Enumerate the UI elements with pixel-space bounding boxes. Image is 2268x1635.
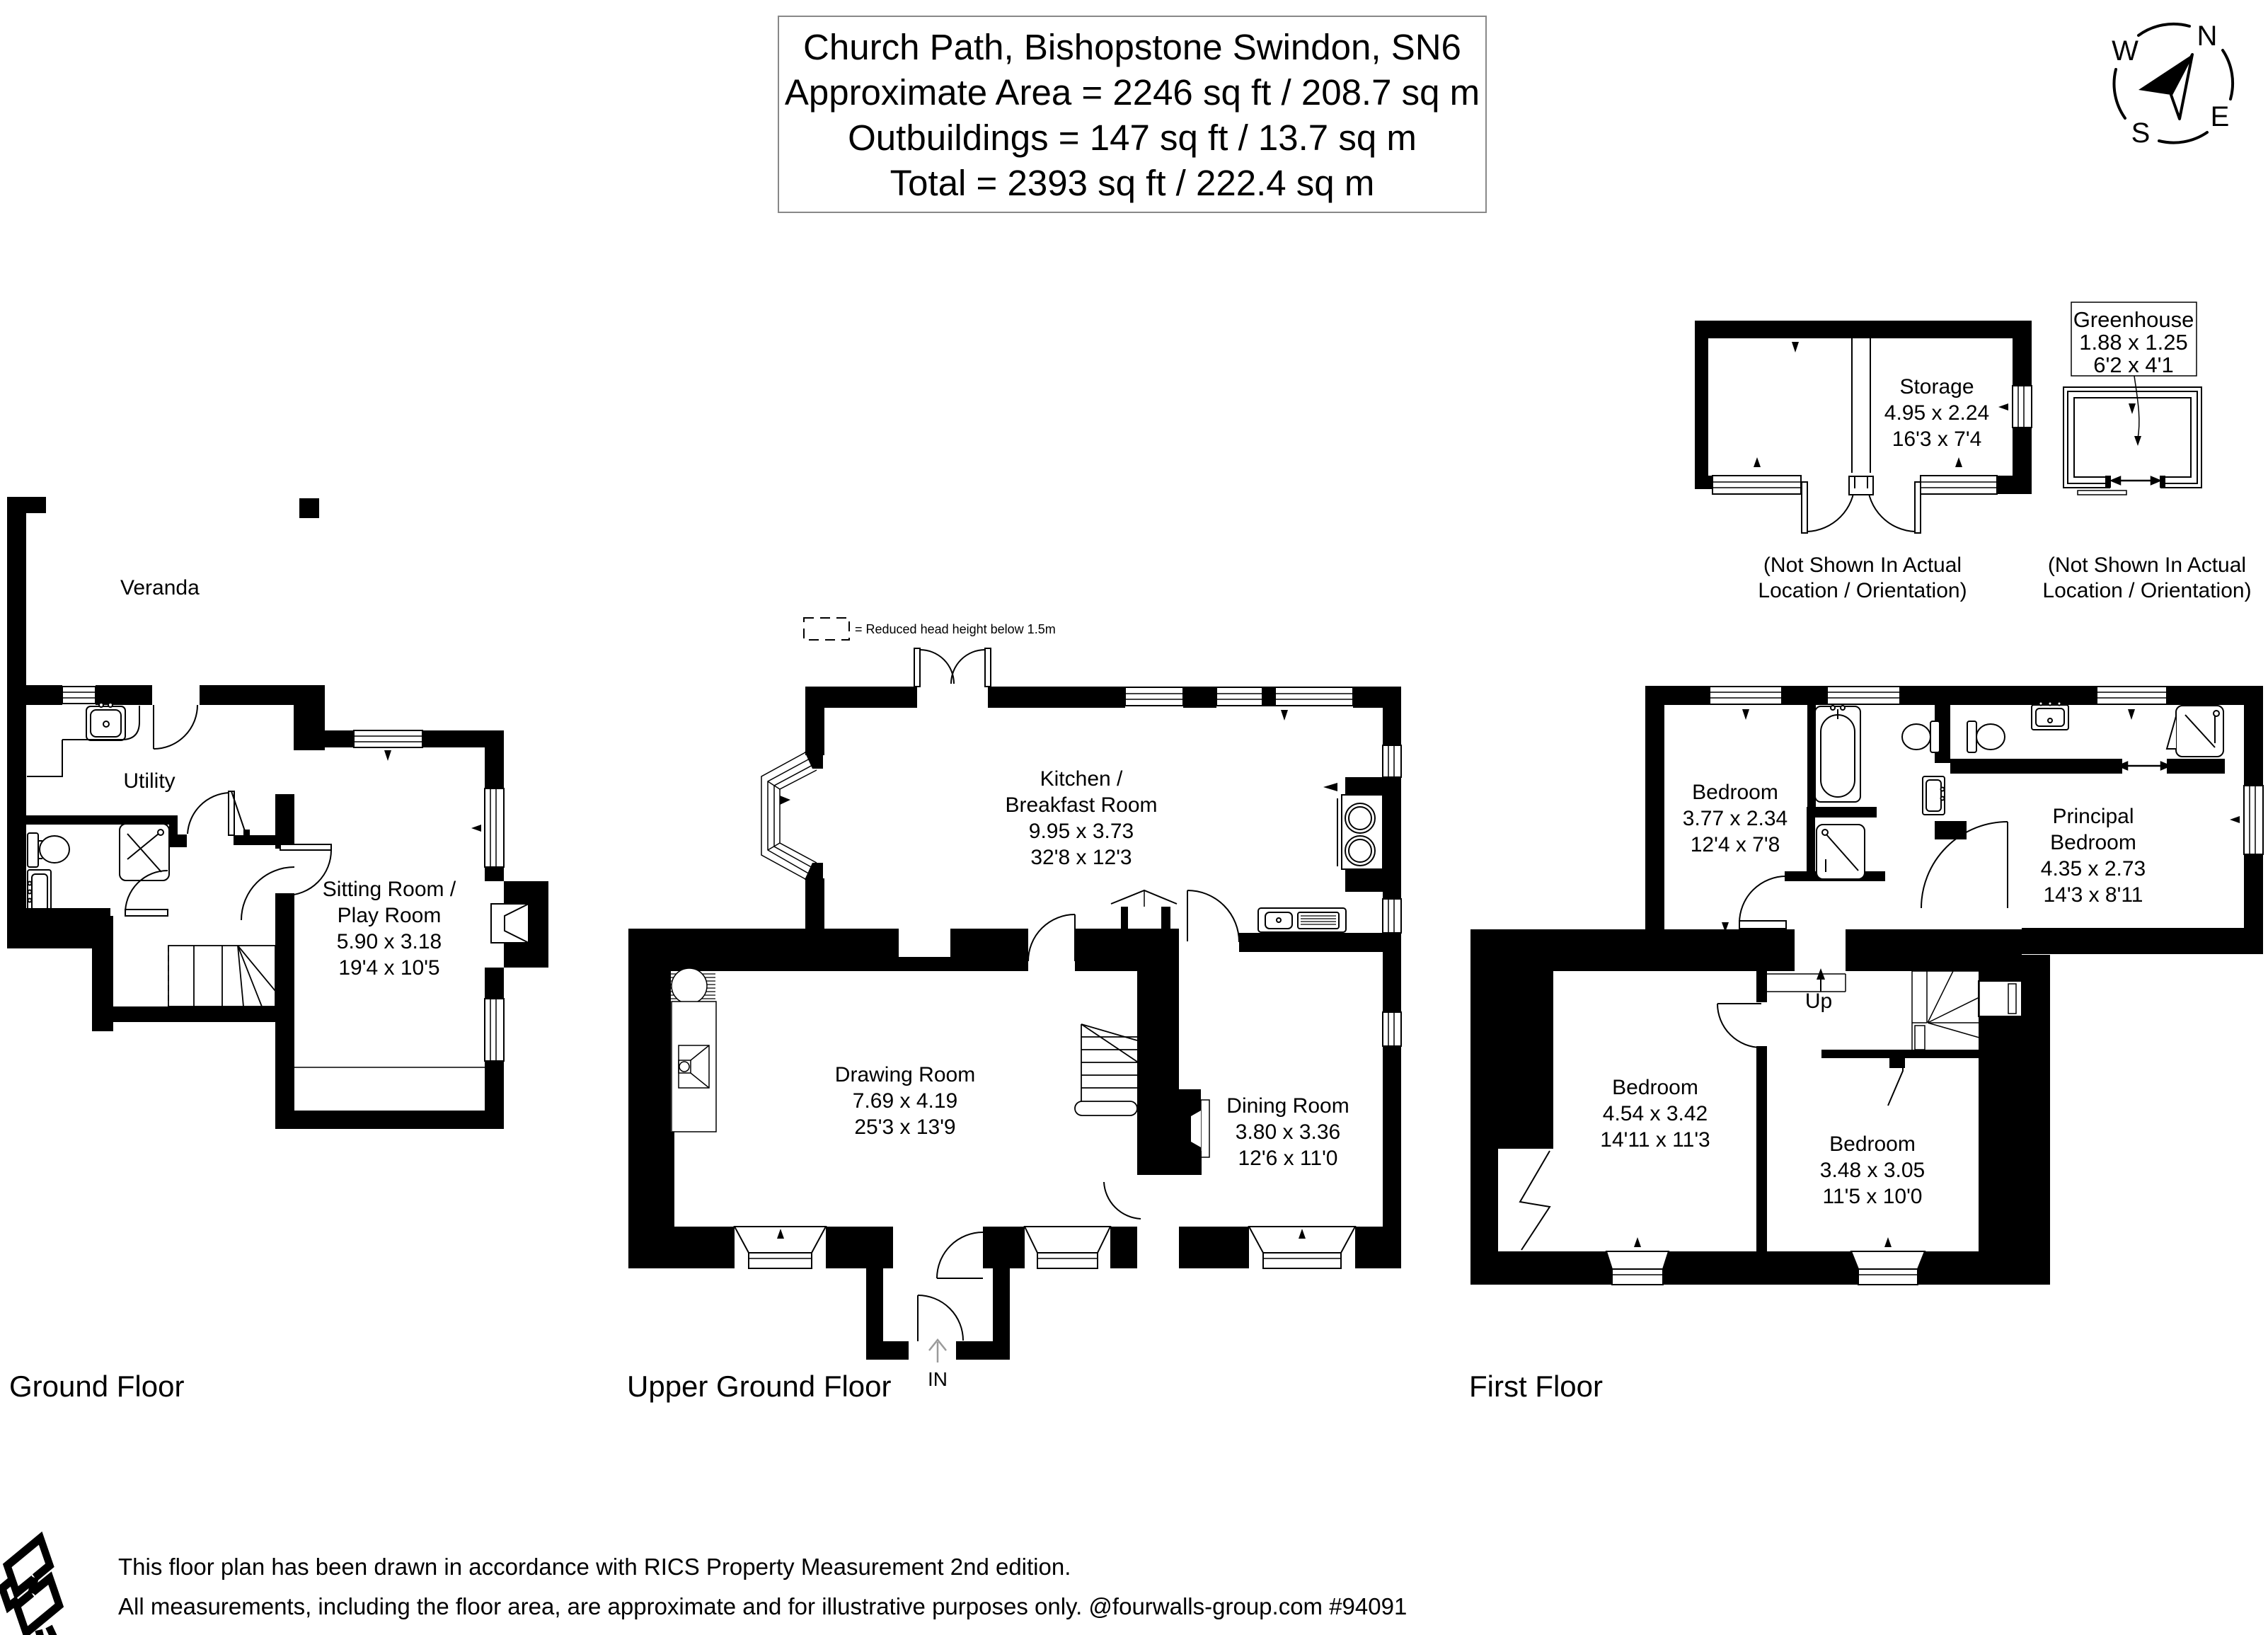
svg-text:= Reduced head height below 1.: = Reduced head height below 1.5m xyxy=(855,622,1056,636)
svg-text:This floor plan has been drawn: This floor plan has been drawn in accord… xyxy=(118,1554,1071,1580)
svg-text:Drawing Room: Drawing Room xyxy=(835,1063,975,1086)
svg-text:Bedroom: Bedroom xyxy=(2050,831,2136,854)
svg-text:First Floor: First Floor xyxy=(1469,1370,1603,1403)
svg-text:9.95 x 3.73: 9.95 x 3.73 xyxy=(1029,820,1134,843)
svg-text:Sitting Room /: Sitting Room / xyxy=(323,878,456,901)
svg-text:Up: Up xyxy=(1805,989,1832,1013)
svg-text:Principal: Principal xyxy=(2052,805,2134,828)
svg-text:S: S xyxy=(2131,117,2151,149)
svg-text:Utility: Utility xyxy=(123,769,175,793)
svg-text:Greenhouse: Greenhouse xyxy=(2073,307,2194,332)
svg-text:1.88 x 1.25: 1.88 x 1.25 xyxy=(2079,330,2187,355)
svg-text:(Not Shown In Actual: (Not Shown In Actual xyxy=(1763,553,1962,577)
svg-text:E: E xyxy=(2211,101,2230,132)
svg-text:Total = 2393 sq ft / 222.4 sq: Total = 2393 sq ft / 222.4 sq m xyxy=(890,163,1375,203)
svg-text:19'4 x 10'5: 19'4 x 10'5 xyxy=(338,956,439,980)
svg-text:5.90 x 3.18: 5.90 x 3.18 xyxy=(337,930,442,953)
svg-text:Veranda: Veranda xyxy=(120,576,200,599)
svg-text:25'3 x 13'9: 25'3 x 13'9 xyxy=(854,1115,955,1139)
svg-text:Approximate Area = 2246 sq ft: Approximate Area = 2246 sq ft / 208.7 sq… xyxy=(785,72,1480,113)
svg-text:Dining Room: Dining Room xyxy=(1226,1094,1349,1118)
svg-text:Kitchen /: Kitchen / xyxy=(1040,767,1123,791)
svg-text:7.69 x 4.19: 7.69 x 4.19 xyxy=(853,1089,957,1113)
svg-text:3.77 x 2.34: 3.77 x 2.34 xyxy=(1683,807,1788,830)
svg-text:IN: IN xyxy=(928,1368,948,1390)
svg-text:11'5 x 10'0: 11'5 x 10'0 xyxy=(1822,1185,1922,1208)
svg-text:4.35 x 2.73: 4.35 x 2.73 xyxy=(2041,857,2146,880)
svg-text:4.54 x 3.42: 4.54 x 3.42 xyxy=(1603,1102,1708,1125)
svg-text:3.48 x 3.05: 3.48 x 3.05 xyxy=(1820,1159,1925,1182)
svg-text:W: W xyxy=(2112,35,2139,67)
svg-text:(Not Shown In Actual: (Not Shown In Actual xyxy=(2048,553,2246,577)
svg-text:Bedroom: Bedroom xyxy=(1612,1076,1698,1099)
svg-text:Ground Floor: Ground Floor xyxy=(9,1370,184,1403)
svg-text:32'8 x 12'3: 32'8 x 12'3 xyxy=(1030,846,1132,869)
svg-text:12'4 x 7'8: 12'4 x 7'8 xyxy=(1691,833,1780,856)
svg-text:12'6 x 11'0: 12'6 x 11'0 xyxy=(1238,1147,1337,1170)
svg-text:Upper Ground Floor: Upper Ground Floor xyxy=(627,1370,892,1403)
svg-text:16'3 x 7'4: 16'3 x 7'4 xyxy=(1892,428,1982,451)
svg-text:Bedroom: Bedroom xyxy=(1692,781,1778,804)
svg-text:Bedroom: Bedroom xyxy=(1829,1132,1916,1156)
svg-text:Storage: Storage xyxy=(1899,375,1974,398)
svg-text:Location / Orientation): Location / Orientation) xyxy=(1758,579,1967,602)
svg-text:All measurements, including th: All measurements, including the floor ar… xyxy=(118,1593,1407,1619)
svg-text:14'3 x 8'11: 14'3 x 8'11 xyxy=(2043,883,2143,907)
svg-text:3.80 x 3.36: 3.80 x 3.36 xyxy=(1236,1120,1340,1144)
svg-text:6'2 x 4'1: 6'2 x 4'1 xyxy=(2093,352,2174,377)
svg-text:4.95 x 2.24: 4.95 x 2.24 xyxy=(1884,401,1989,425)
svg-text:Location / Orientation): Location / Orientation) xyxy=(2042,579,2251,602)
svg-text:Church Path, Bishopstone Swind: Church Path, Bishopstone Swindon, SN6 xyxy=(803,27,1461,67)
svg-text:Play Room: Play Room xyxy=(338,904,442,927)
svg-text:14'11 x 11'3: 14'11 x 11'3 xyxy=(1600,1128,1710,1152)
svg-text:N: N xyxy=(2197,21,2218,52)
svg-text:Breakfast Room: Breakfast Room xyxy=(1005,793,1157,817)
svg-text:Outbuildings = 147 sq ft / 13.: Outbuildings = 147 sq ft / 13.7 sq m xyxy=(848,117,1417,158)
